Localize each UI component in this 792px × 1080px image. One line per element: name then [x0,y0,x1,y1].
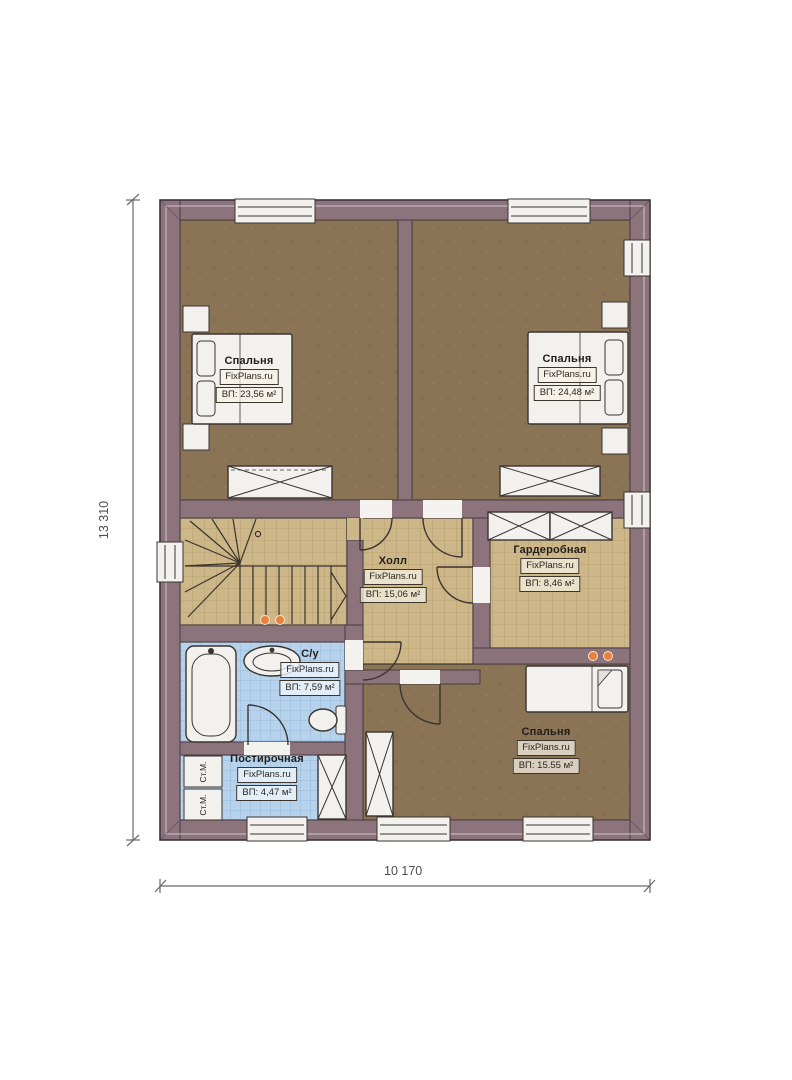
pillow [197,381,215,416]
room-area: ВП: 23,56 м² [216,387,283,403]
nightstand [183,424,209,450]
closet-bedroom3 [366,732,393,816]
wall-stairs-bathroom [180,625,347,642]
watermark: FixPlans.ru [520,558,580,574]
door-gap-wardrobe [473,567,490,603]
nightstand [183,306,209,332]
door-gap-bedroom2 [423,500,462,518]
watermark: FixPlans.ru [280,662,340,678]
bathtub [186,646,236,742]
closet-bedroom2 [500,466,600,496]
nightstand [602,428,628,454]
closet-laundry [318,755,346,819]
pillow [197,341,215,376]
room-label-bedroom-top-right: Спальня FixPlans.ru ВП: 24,48 м² [534,353,601,401]
room-area: ВП: 15.55 м² [513,758,580,774]
window-right-2 [624,492,650,528]
closet-wardrobe [488,512,612,540]
room-name: Спальня [225,355,274,367]
room-name: Холл [379,555,407,567]
closet-bedroom1 [228,466,332,498]
room-area: ВП: 8,46 м² [519,576,580,592]
door-gap-bedroom1 [360,500,392,518]
pillow [605,380,623,415]
nightstand [602,302,628,328]
room-area: ВП: 7,59 м² [279,680,340,696]
window-bottom-2 [377,817,450,841]
room-label-bedroom-top-left: Спальня FixPlans.ru ВП: 23,56 м² [216,355,283,403]
room-name: Спальня [543,353,592,365]
watermark: FixPlans.ru [219,369,279,385]
dimension-width-label: 10 170 [384,864,422,878]
washer-label: Ст.М. [198,795,208,816]
watermark: FixPlans.ru [363,569,423,585]
room-area: ВП: 24,48 м² [534,385,601,401]
room-name: Гардеробная [513,544,586,556]
room-name: Спальня [522,726,571,738]
washer-label: Ст.М. [198,762,208,783]
room-label-laundry: Постирочная FixPlans.ru ВП: 4,47 м² [230,753,304,801]
window-right-1 [624,240,650,276]
dimension-height-label: 13 310 [97,501,111,539]
room-name: Постирочная [230,753,304,765]
window-bottom-3 [523,817,593,841]
room-name: С/у [301,648,319,660]
door-gap-bedroom3 [400,670,440,684]
wall-between-bedrooms [398,220,412,500]
bed-bottom [526,666,628,712]
room-label-bathroom: С/у FixPlans.ru ВП: 7,59 м² [279,648,340,696]
window-top-2 [508,199,590,223]
floor-plan-page: Ст.М. Ст.М. [0,0,792,1080]
room-label-bedroom-bottom: Спальня FixPlans.ru ВП: 15.55 м² [513,726,580,774]
room-area: ВП: 4,47 м² [236,785,297,801]
pillow [605,340,623,375]
door-gap-bathroom [345,640,363,670]
watermark: FixPlans.ru [516,740,576,756]
window-left-1 [157,542,183,582]
room-label-hall: Холл FixPlans.ru ВП: 15,06 м² [360,555,427,603]
window-top-1 [235,199,315,223]
room-area: ВП: 15,06 м² [360,587,427,603]
floor-plan-drawing: Ст.М. Ст.М. [0,0,792,1080]
watermark: FixPlans.ru [237,767,297,783]
room-label-wardrobe: Гардеробная FixPlans.ru ВП: 8,46 м² [513,544,586,592]
watermark: FixPlans.ru [537,367,597,383]
window-bottom-1 [247,817,307,841]
wall-outer-left [160,200,180,840]
